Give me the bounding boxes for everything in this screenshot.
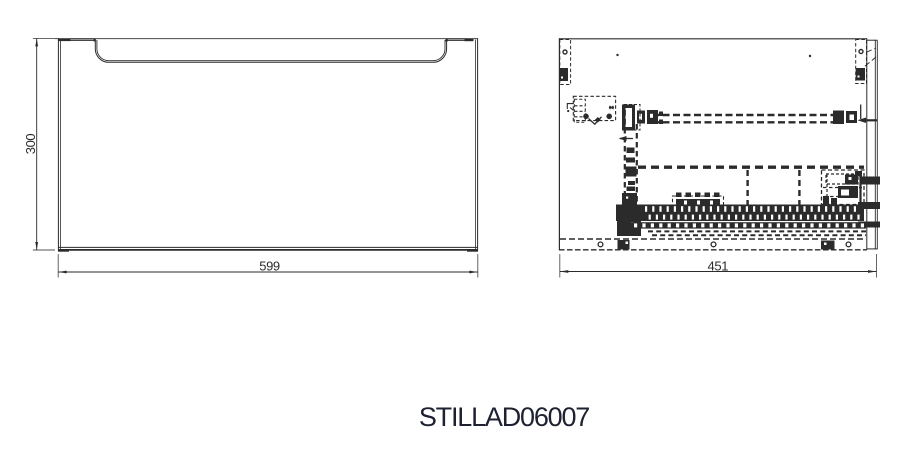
svg-text:599: 599: [259, 258, 280, 273]
svg-text:300: 300: [23, 134, 38, 155]
svg-text:451: 451: [708, 258, 729, 273]
svg-text:STILLAD06007: STILLAD06007: [419, 402, 589, 432]
